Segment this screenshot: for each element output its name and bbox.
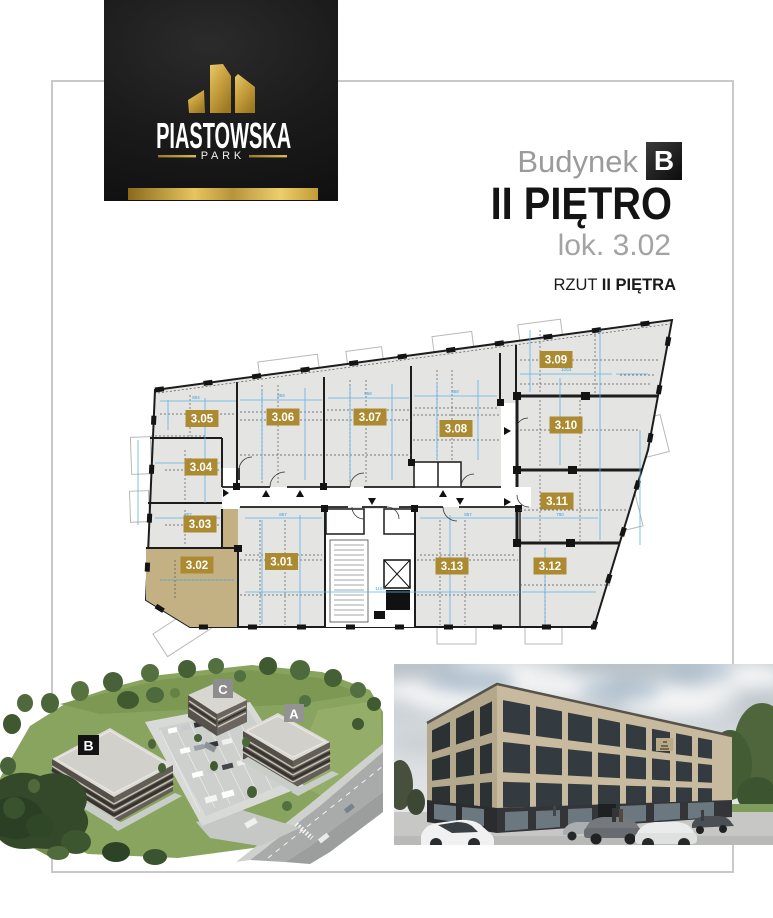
svg-text:858: 858 [364, 391, 372, 396]
svg-text:3.04: 3.04 [190, 462, 213, 474]
svg-text:3.01: 3.01 [270, 557, 293, 569]
svg-text:3.07: 3.07 [359, 412, 381, 424]
svg-text:3.05: 3.05 [191, 414, 214, 426]
svg-text:858: 858 [451, 389, 459, 394]
svg-text:3.12: 3.12 [539, 561, 561, 573]
svg-text:780: 780 [556, 512, 564, 517]
svg-text:857: 857 [464, 512, 472, 517]
svg-text:3.08: 3.08 [445, 424, 468, 436]
svg-text:3.03: 3.03 [189, 519, 211, 531]
svg-text:857: 857 [279, 512, 287, 517]
svg-text:858: 858 [277, 393, 285, 398]
svg-text:3.11: 3.11 [546, 496, 568, 508]
svg-text:A: A [289, 707, 299, 722]
svg-text:3.10: 3.10 [555, 420, 577, 432]
svg-text:1103: 1103 [375, 586, 385, 591]
svg-text:3.02: 3.02 [186, 560, 208, 572]
svg-text:3.13: 3.13 [441, 561, 463, 573]
svg-text:B: B [83, 738, 93, 754]
svg-text:804: 804 [192, 395, 200, 400]
svg-text:3.09: 3.09 [545, 355, 567, 367]
svg-text:C: C [218, 682, 228, 697]
svg-text:3.06: 3.06 [272, 412, 294, 424]
